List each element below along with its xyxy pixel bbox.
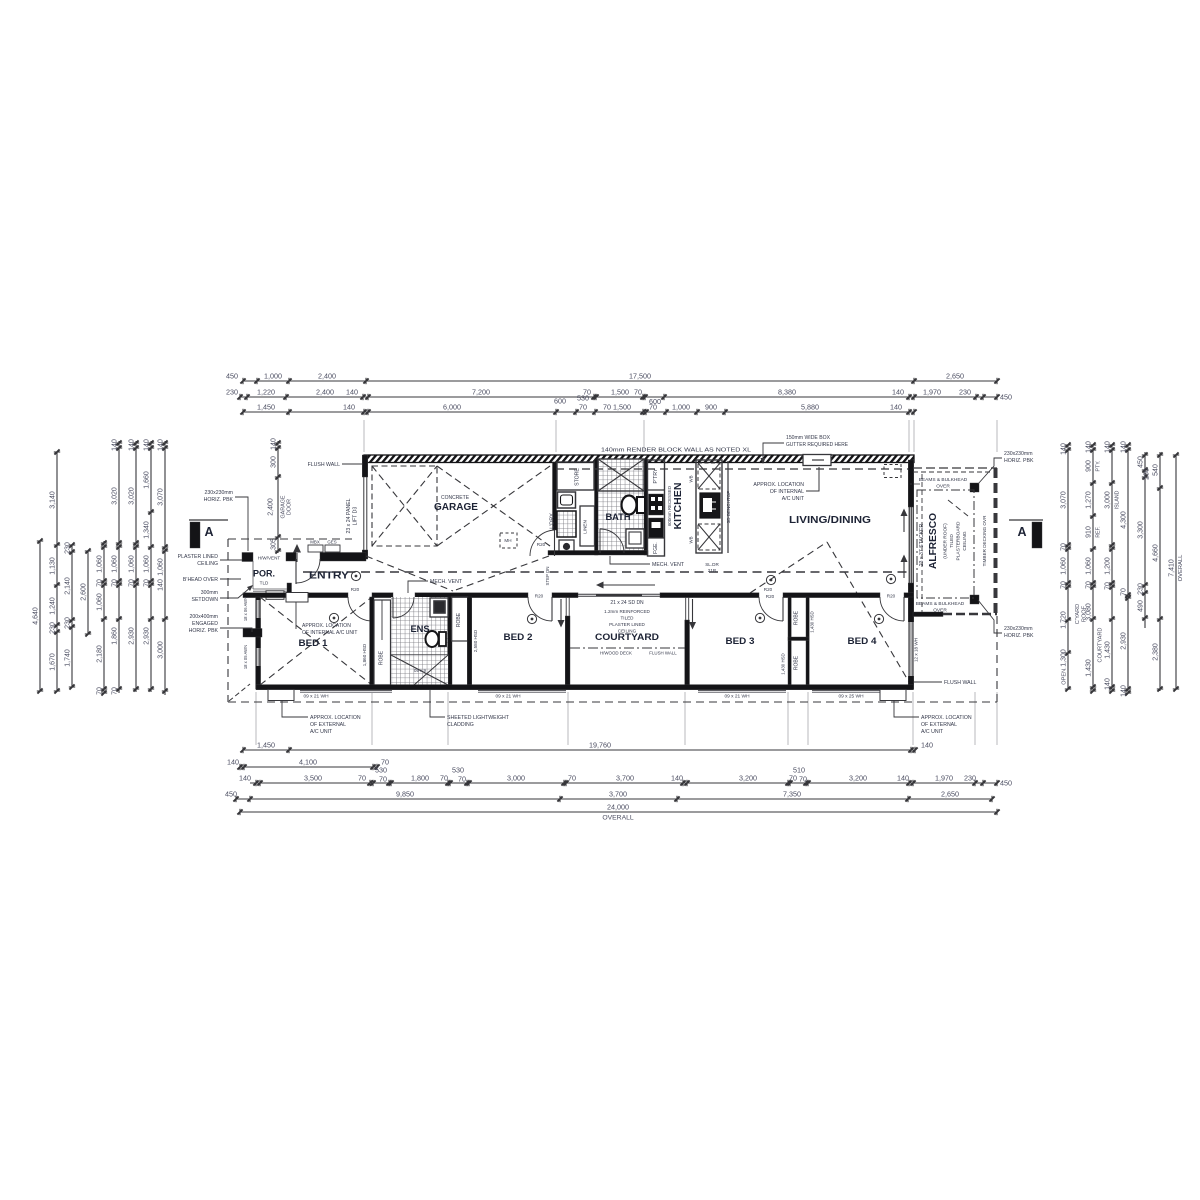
- svg-text:B’HEAD OVER: B’HEAD OVER: [183, 577, 218, 583]
- svg-text:FGE.: FGE.: [653, 542, 659, 554]
- svg-text:ENTRY: ENTRY: [309, 570, 349, 582]
- svg-text:HORIZ. PBK: HORIZ. PBK: [1004, 458, 1034, 464]
- svg-text:R20: R20: [535, 594, 544, 599]
- svg-text:140: 140: [1121, 441, 1128, 453]
- svg-text:24,000: 24,000: [607, 803, 629, 812]
- svg-text:21R: 21R: [708, 568, 717, 573]
- svg-text:450: 450: [1138, 456, 1145, 468]
- svg-text:STORE: STORE: [575, 468, 581, 486]
- svg-text:4,100: 4,100: [299, 758, 317, 767]
- svg-text:17,500: 17,500: [629, 372, 651, 381]
- svg-text:LIVING/DINING: LIVING/DINING: [789, 514, 871, 526]
- svg-text:CEILING: CEILING: [962, 531, 968, 550]
- svg-text:1,500: 1,500: [611, 388, 629, 397]
- svg-text:2,180: 2,180: [97, 645, 104, 663]
- svg-text:SL.DR: SL.DR: [705, 562, 719, 567]
- svg-text:600mm RECESSED: 600mm RECESSED: [667, 486, 672, 526]
- svg-text:140: 140: [1105, 441, 1112, 453]
- svg-text:900: 900: [705, 403, 717, 412]
- svg-text:OF INTERNAL: OF INTERNAL: [770, 489, 804, 495]
- svg-text:GARAGE: GARAGE: [434, 501, 478, 513]
- svg-text:GUTTER REQUIRED HERE: GUTTER REQUIRED HERE: [786, 442, 848, 448]
- svg-text:3,700: 3,700: [609, 790, 627, 799]
- svg-text:ROBE: ROBE: [379, 650, 385, 665]
- svg-text:1,740: 1,740: [65, 649, 72, 667]
- svg-text:70: 70: [1061, 581, 1068, 589]
- svg-text:BED 2: BED 2: [504, 632, 533, 643]
- svg-text:FLUSH WALL: FLUSH WALL: [944, 680, 976, 686]
- svg-text:70: 70: [799, 775, 807, 784]
- svg-text:STEP DN: STEP DN: [545, 567, 550, 586]
- svg-text:70: 70: [97, 579, 104, 587]
- svg-text:1,670: 1,670: [50, 653, 57, 671]
- svg-text:230x230mm: 230x230mm: [204, 490, 233, 496]
- svg-text:1,450: 1,450: [257, 403, 275, 412]
- svg-text:4,640: 4,640: [33, 607, 40, 625]
- svg-text:490: 490: [1138, 600, 1145, 612]
- svg-text:450: 450: [1000, 779, 1012, 788]
- svg-text:3,020: 3,020: [129, 487, 136, 505]
- svg-text:TILED: TILED: [620, 616, 634, 621]
- svg-text:1,270: 1,270: [1086, 491, 1093, 509]
- svg-text:A/C UNIT: A/C UNIT: [782, 496, 805, 502]
- svg-text:PLASTERBOARD: PLASTERBOARD: [956, 521, 962, 560]
- svg-text:3,300: 3,300: [1138, 521, 1145, 539]
- svg-text:3,200: 3,200: [739, 774, 757, 783]
- svg-text:140: 140: [1105, 678, 1112, 690]
- svg-text:H/W/VENT: H/W/VENT: [258, 556, 281, 561]
- svg-text:140: 140: [1061, 443, 1068, 455]
- svg-text:OF INTERNAL A/C UNIT: OF INTERNAL A/C UNIT: [302, 630, 357, 636]
- svg-text:2,400: 2,400: [268, 498, 275, 516]
- svg-text:R20: R20: [764, 587, 773, 592]
- svg-text:09 x 21 WH: 09 x 21 WH: [495, 694, 521, 700]
- svg-text:70: 70: [1105, 582, 1112, 590]
- svg-text:230: 230: [1138, 583, 1145, 595]
- svg-text:LINEN: LINEN: [583, 520, 588, 534]
- svg-text:70: 70: [379, 775, 387, 784]
- svg-text:CLADDING: CLADDING: [447, 722, 474, 728]
- svg-text:140: 140: [158, 579, 165, 591]
- svg-text:PLASTER LINED: PLASTER LINED: [609, 622, 645, 627]
- svg-text:600: 600: [554, 397, 566, 406]
- svg-text:R20: R20: [537, 542, 546, 547]
- svg-text:70: 70: [1121, 588, 1128, 596]
- svg-text:9,850: 9,850: [396, 790, 414, 799]
- svg-text:TIMBER DECKING OVR: TIMBER DECKING OVR: [982, 515, 987, 566]
- svg-text:H/WOOD DECK: H/WOOD DECK: [600, 651, 632, 656]
- svg-text:70: 70: [1061, 543, 1068, 551]
- svg-text:70: 70: [458, 775, 466, 784]
- svg-text:3,200: 3,200: [849, 774, 867, 783]
- svg-text:MH: MH: [504, 538, 511, 543]
- svg-text:140: 140: [271, 438, 278, 450]
- svg-text:APPROX. LOCATION: APPROX. LOCATION: [302, 623, 351, 629]
- svg-text:19,760: 19,760: [589, 741, 611, 750]
- svg-text:HORIZ. PBK: HORIZ. PBK: [1004, 633, 1034, 639]
- svg-text:2,380: 2,380: [1153, 643, 1160, 661]
- svg-text:70: 70: [649, 403, 657, 412]
- svg-text:305: 305: [271, 538, 278, 550]
- svg-text:05 x 9: 05 x 9: [414, 668, 427, 673]
- svg-text:70: 70: [97, 687, 104, 695]
- svg-text:140: 140: [921, 741, 933, 750]
- svg-text:230: 230: [959, 388, 971, 397]
- svg-text:HORIZ. PBK: HORIZ. PBK: [189, 628, 219, 634]
- svg-text:09 x 21 WH: 09 x 21 WH: [303, 694, 329, 700]
- svg-text:18 x 05 AWN: 18 x 05 AWN: [243, 645, 248, 669]
- svg-text:21 x 24 SD DN: 21 x 24 SD DN: [610, 600, 644, 606]
- svg-text:70 1,500: 70 1,500: [603, 403, 631, 412]
- svg-text:140: 140: [890, 403, 902, 412]
- svg-text:4,300: 4,300: [1121, 511, 1128, 529]
- svg-text:L’DRY: L’DRY: [550, 513, 556, 529]
- svg-text:CEILING: CEILING: [197, 561, 218, 567]
- svg-text:OVERALL: OVERALL: [602, 815, 634, 822]
- svg-text:ISLAND: ISLAND: [1115, 490, 1121, 509]
- svg-text:WB: WB: [689, 475, 694, 482]
- svg-text:70: 70: [440, 774, 448, 783]
- svg-text:MECH. VENT: MECH. VENT: [652, 562, 685, 568]
- svg-text:POR.: POR.: [253, 569, 275, 579]
- svg-text:GES: GES: [327, 540, 336, 545]
- svg-text:910: 910: [1086, 526, 1093, 538]
- svg-text:450: 450: [226, 372, 238, 381]
- svg-text:1,720: 1,720: [1061, 611, 1068, 629]
- svg-text:530: 530: [577, 394, 589, 403]
- svg-text:450: 450: [225, 790, 237, 799]
- svg-text:140: 140: [158, 439, 165, 451]
- svg-text:MECH. VENT: MECH. VENT: [430, 579, 463, 585]
- svg-text:8,380: 8,380: [778, 388, 796, 397]
- svg-text:COURTYARD: COURTYARD: [1098, 628, 1104, 663]
- svg-text:PTY.: PTY.: [1096, 461, 1102, 472]
- svg-text:1,340: 1,340: [144, 521, 151, 539]
- svg-text:ROBE: ROBE: [794, 655, 800, 670]
- svg-text:A/C UNIT: A/C UNIT: [310, 729, 333, 735]
- svg-text:APPROX. LOCATION: APPROX. LOCATION: [310, 715, 361, 721]
- svg-text:18 x 06 AWN: 18 x 06 AWN: [243, 597, 248, 621]
- svg-text:ENGAGED: ENGAGED: [192, 621, 218, 627]
- svg-text:140: 140: [144, 439, 151, 451]
- svg-text:140: 140: [897, 774, 909, 783]
- svg-text:P’TRY: P’TRY: [653, 468, 659, 483]
- svg-text:R20: R20: [766, 594, 775, 599]
- svg-text:2,580 HSD: 2,580 HSD: [473, 629, 478, 652]
- svg-text:1,430 HSD: 1,430 HSD: [781, 653, 786, 674]
- svg-text:1,060: 1,060: [112, 555, 119, 573]
- svg-text:OVER: OVER: [936, 484, 950, 490]
- svg-text:70: 70: [358, 774, 366, 783]
- svg-text:TILED: TILED: [949, 534, 955, 548]
- svg-text:140: 140: [129, 439, 136, 451]
- svg-text:3,000: 3,000: [158, 641, 165, 659]
- svg-text:510: 510: [793, 766, 805, 775]
- svg-text:70: 70: [568, 774, 576, 783]
- svg-text:TLD: TLD: [260, 581, 269, 586]
- svg-text:1,970: 1,970: [923, 388, 941, 397]
- svg-text:1,430 HSD: 1,430 HSD: [810, 611, 815, 632]
- svg-text:3,020: 3,020: [112, 487, 119, 505]
- svg-text:140: 140: [671, 774, 683, 783]
- svg-text:LIFT D3: LIFT D3: [353, 507, 359, 526]
- svg-text:OVERALL: OVERALL: [1178, 554, 1184, 582]
- svg-text:BEAMS & BULKHEAD: BEAMS & BULKHEAD: [919, 477, 968, 483]
- svg-text:OPEN.: OPEN.: [1062, 667, 1068, 685]
- svg-text:PLASTER LINED: PLASTER LINED: [178, 554, 219, 560]
- svg-text:2,930: 2,930: [144, 627, 151, 645]
- svg-text:900: 900: [1086, 460, 1093, 472]
- svg-text:SETDOWN: SETDOWN: [191, 597, 218, 603]
- svg-text:70: 70: [129, 579, 136, 587]
- svg-text:230: 230: [964, 774, 976, 783]
- svg-text:HORIZ. PBK: HORIZ. PBK: [204, 497, 234, 503]
- svg-text:150mm WIDE BOX: 150mm WIDE BOX: [786, 435, 831, 441]
- svg-text:1,000: 1,000: [264, 372, 282, 381]
- svg-text:200x400mm: 200x400mm: [189, 614, 218, 620]
- svg-text:1,130: 1,130: [50, 557, 57, 575]
- svg-text:BED 1: BED 1: [299, 638, 329, 649]
- svg-text:2,140: 2,140: [65, 577, 72, 595]
- svg-text:COURTYARD: COURTYARD: [595, 632, 659, 643]
- svg-text:230: 230: [65, 617, 72, 629]
- svg-text:230x230mm: 230x230mm: [1004, 451, 1033, 457]
- svg-text:1,800: 1,800: [411, 774, 429, 783]
- svg-text:09 x 21 WH: 09 x 21 WH: [724, 694, 750, 700]
- svg-text:1,060: 1,060: [97, 555, 104, 573]
- svg-text:3,070: 3,070: [158, 488, 165, 506]
- svg-text:70: 70: [789, 774, 797, 783]
- svg-text:A/C UNIT: A/C UNIT: [921, 729, 944, 735]
- svg-text:7,410: 7,410: [1169, 559, 1176, 577]
- svg-text:6,000: 6,000: [443, 403, 461, 412]
- svg-text:140: 140: [1121, 685, 1128, 697]
- svg-text:1,240: 1,240: [50, 597, 57, 615]
- svg-text:70: 70: [579, 403, 587, 412]
- svg-text:ROBE: ROBE: [456, 612, 462, 627]
- svg-text:(UNDER ROOF): (UNDER ROOF): [943, 523, 949, 559]
- svg-text:70: 70: [634, 388, 642, 397]
- svg-text:3,000: 3,000: [507, 774, 525, 783]
- svg-text:230x230mm: 230x230mm: [1004, 626, 1033, 632]
- svg-text:1,220: 1,220: [257, 388, 275, 397]
- svg-text:1,060: 1,060: [158, 558, 165, 576]
- svg-text:23 x 37 STACKER: 23 x 37 STACKER: [919, 523, 925, 566]
- svg-text:140: 140: [239, 774, 251, 783]
- svg-text:1,970: 1,970: [935, 774, 953, 783]
- svg-text:23 x 24 PANEL: 23 x 24 PANEL: [346, 498, 352, 533]
- svg-text:70: 70: [112, 579, 119, 587]
- svg-text:09 x 25 WH: 09 x 25 WH: [838, 694, 864, 700]
- svg-text:1,060: 1,060: [129, 555, 136, 573]
- svg-text:230: 230: [65, 542, 72, 554]
- svg-text:7,200: 7,200: [472, 388, 490, 397]
- svg-text:MBX: MBX: [310, 540, 320, 545]
- svg-text:APPROX. LOCATION: APPROX. LOCATION: [753, 482, 804, 488]
- svg-text:230: 230: [226, 388, 238, 397]
- svg-text:2,600: 2,600: [81, 583, 88, 601]
- svg-text:1,200: 1,200: [1105, 557, 1112, 575]
- svg-text:5,880: 5,880: [801, 403, 819, 412]
- svg-text:140: 140: [112, 439, 119, 451]
- svg-text:A: A: [204, 525, 213, 539]
- svg-text:1,660: 1,660: [144, 471, 151, 489]
- svg-text:BED 3: BED 3: [726, 636, 755, 647]
- svg-text:FLUSH WALL: FLUSH WALL: [649, 651, 677, 656]
- svg-text:OF EXTERNAL: OF EXTERNAL: [310, 722, 346, 728]
- svg-text:3,000: 3,000: [1105, 491, 1112, 509]
- svg-text:SHEETED LIGHTWEIGHT: SHEETED LIGHTWEIGHT: [447, 715, 510, 721]
- svg-text:ROBE: ROBE: [794, 610, 800, 625]
- svg-text:530: 530: [452, 766, 464, 775]
- svg-text:BEAMS & BULKHEAD: BEAMS & BULKHEAD: [916, 601, 965, 607]
- svg-text:140mm RENDER BLOCK WALL AS NOT: 140mm RENDER BLOCK WALL AS NOTED XL: [601, 448, 751, 454]
- svg-text:1,060: 1,060: [1061, 557, 1068, 575]
- svg-text:230: 230: [1144, 468, 1151, 480]
- svg-text:WB: WB: [689, 536, 694, 543]
- svg-text:APPROX. LOCATION: APPROX. LOCATION: [921, 715, 972, 721]
- svg-text:140: 140: [343, 403, 355, 412]
- svg-text:140: 140: [1086, 441, 1093, 453]
- svg-text:1,000: 1,000: [672, 403, 690, 412]
- svg-text:R20: R20: [887, 594, 896, 599]
- svg-text:1,430: 1,430: [1086, 659, 1093, 677]
- svg-text:3,700: 3,700: [616, 774, 634, 783]
- svg-text:KITCHEN: KITCHEN: [673, 483, 684, 530]
- svg-text:70: 70: [1086, 581, 1093, 589]
- svg-text:2,930: 2,930: [129, 627, 136, 645]
- svg-text:2,650: 2,650: [941, 790, 959, 799]
- svg-text:C’YARD: C’YARD: [1075, 604, 1081, 624]
- svg-text:BED 4: BED 4: [848, 636, 878, 647]
- svg-text:1,060: 1,060: [1086, 557, 1093, 575]
- svg-text:1,450: 1,450: [257, 741, 275, 750]
- svg-text:2,930: 2,930: [1121, 632, 1128, 650]
- svg-text:7,350: 7,350: [783, 790, 801, 799]
- svg-text:70: 70: [144, 579, 151, 587]
- svg-text:OF EXTERNAL: OF EXTERNAL: [921, 722, 957, 728]
- svg-text:140: 140: [892, 388, 904, 397]
- svg-text:12 x 18 WH: 12 x 18 WH: [914, 638, 919, 662]
- svg-text:300: 300: [271, 456, 278, 468]
- svg-text:1,430: 1,430: [1105, 641, 1112, 659]
- svg-text:3,070: 3,070: [1061, 491, 1068, 509]
- svg-text:1,300: 1,300: [1061, 649, 1068, 667]
- svg-text:REF.: REF.: [1096, 526, 1102, 537]
- svg-text:140: 140: [227, 758, 239, 767]
- svg-text:2,400: 2,400: [318, 372, 336, 381]
- svg-text:FLUSH WALL: FLUSH WALL: [308, 462, 340, 468]
- svg-text:1,060: 1,060: [144, 555, 151, 573]
- svg-text:140: 140: [346, 388, 358, 397]
- svg-text:ROOF: ROOF: [1082, 605, 1088, 622]
- svg-text:2,400: 2,400: [316, 388, 334, 397]
- svg-text:R20: R20: [351, 587, 360, 592]
- svg-text:3D BENCHTOP: 3D BENCHTOP: [726, 491, 731, 524]
- svg-text:3,140: 3,140: [50, 491, 57, 509]
- svg-text:2,650: 2,650: [946, 372, 964, 381]
- svg-text:230: 230: [50, 622, 57, 634]
- svg-text:1,860: 1,860: [112, 627, 119, 645]
- svg-text:1,860 HSD: 1,860 HSD: [362, 643, 367, 666]
- svg-text:1.2mm REINFORCED: 1.2mm REINFORCED: [604, 609, 650, 614]
- svg-text:DOOR: DOOR: [287, 499, 293, 515]
- svg-text:540: 540: [1153, 464, 1160, 476]
- svg-text:ALFRESCO: ALFRESCO: [928, 513, 939, 569]
- svg-text:3,500: 3,500: [304, 774, 322, 783]
- svg-text:70: 70: [112, 687, 119, 695]
- svg-text:300mm: 300mm: [201, 590, 218, 596]
- svg-text:1,060: 1,060: [97, 593, 104, 611]
- svg-text:A: A: [1017, 525, 1026, 539]
- svg-text:530: 530: [375, 766, 387, 775]
- svg-text:BATH: BATH: [606, 512, 631, 523]
- svg-text:OVER: OVER: [933, 608, 947, 614]
- svg-text:4,660: 4,660: [1153, 544, 1160, 562]
- svg-text:450: 450: [1000, 393, 1012, 402]
